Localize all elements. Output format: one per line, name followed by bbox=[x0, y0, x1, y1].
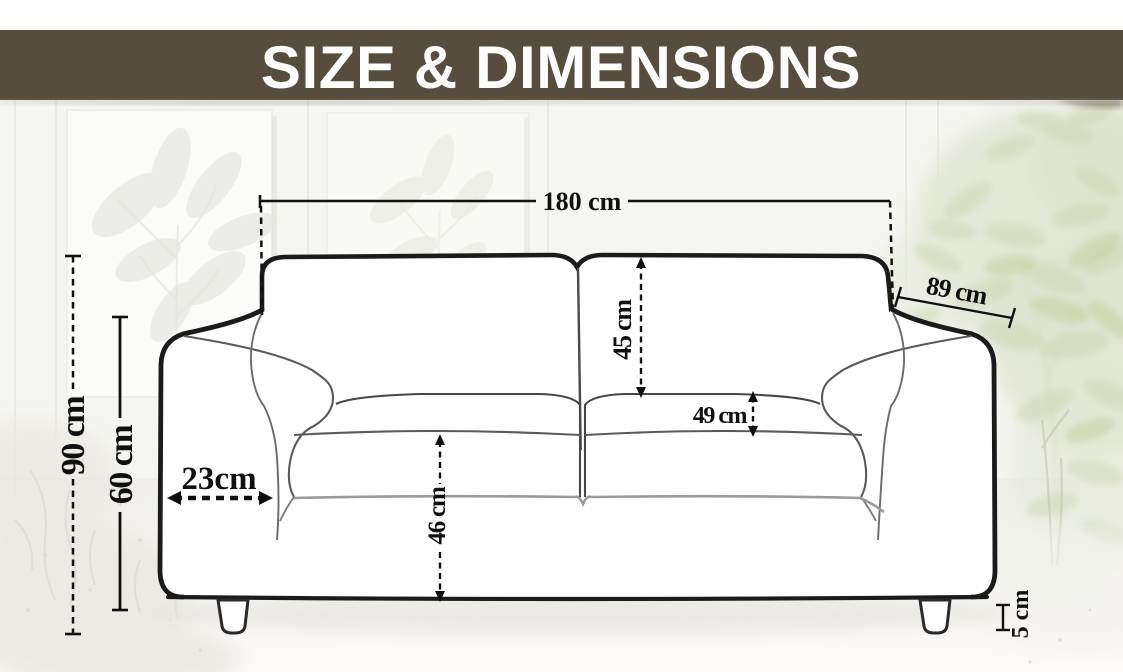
svg-text:49 cm: 49 cm bbox=[693, 403, 748, 429]
svg-text:60 cm: 60 cm bbox=[103, 425, 140, 505]
svg-text:SIZE & DIMENSIONS: SIZE & DIMENSIONS bbox=[261, 34, 861, 101]
svg-text:5 cm: 5 cm bbox=[1008, 590, 1034, 639]
svg-text:180 cm: 180 cm bbox=[543, 187, 622, 216]
svg-text:46 cm: 46 cm bbox=[424, 486, 451, 545]
svg-text:23cm: 23cm bbox=[181, 461, 256, 497]
svg-text:45 cm: 45 cm bbox=[608, 299, 637, 360]
svg-text:90 cm: 90 cm bbox=[55, 396, 92, 476]
